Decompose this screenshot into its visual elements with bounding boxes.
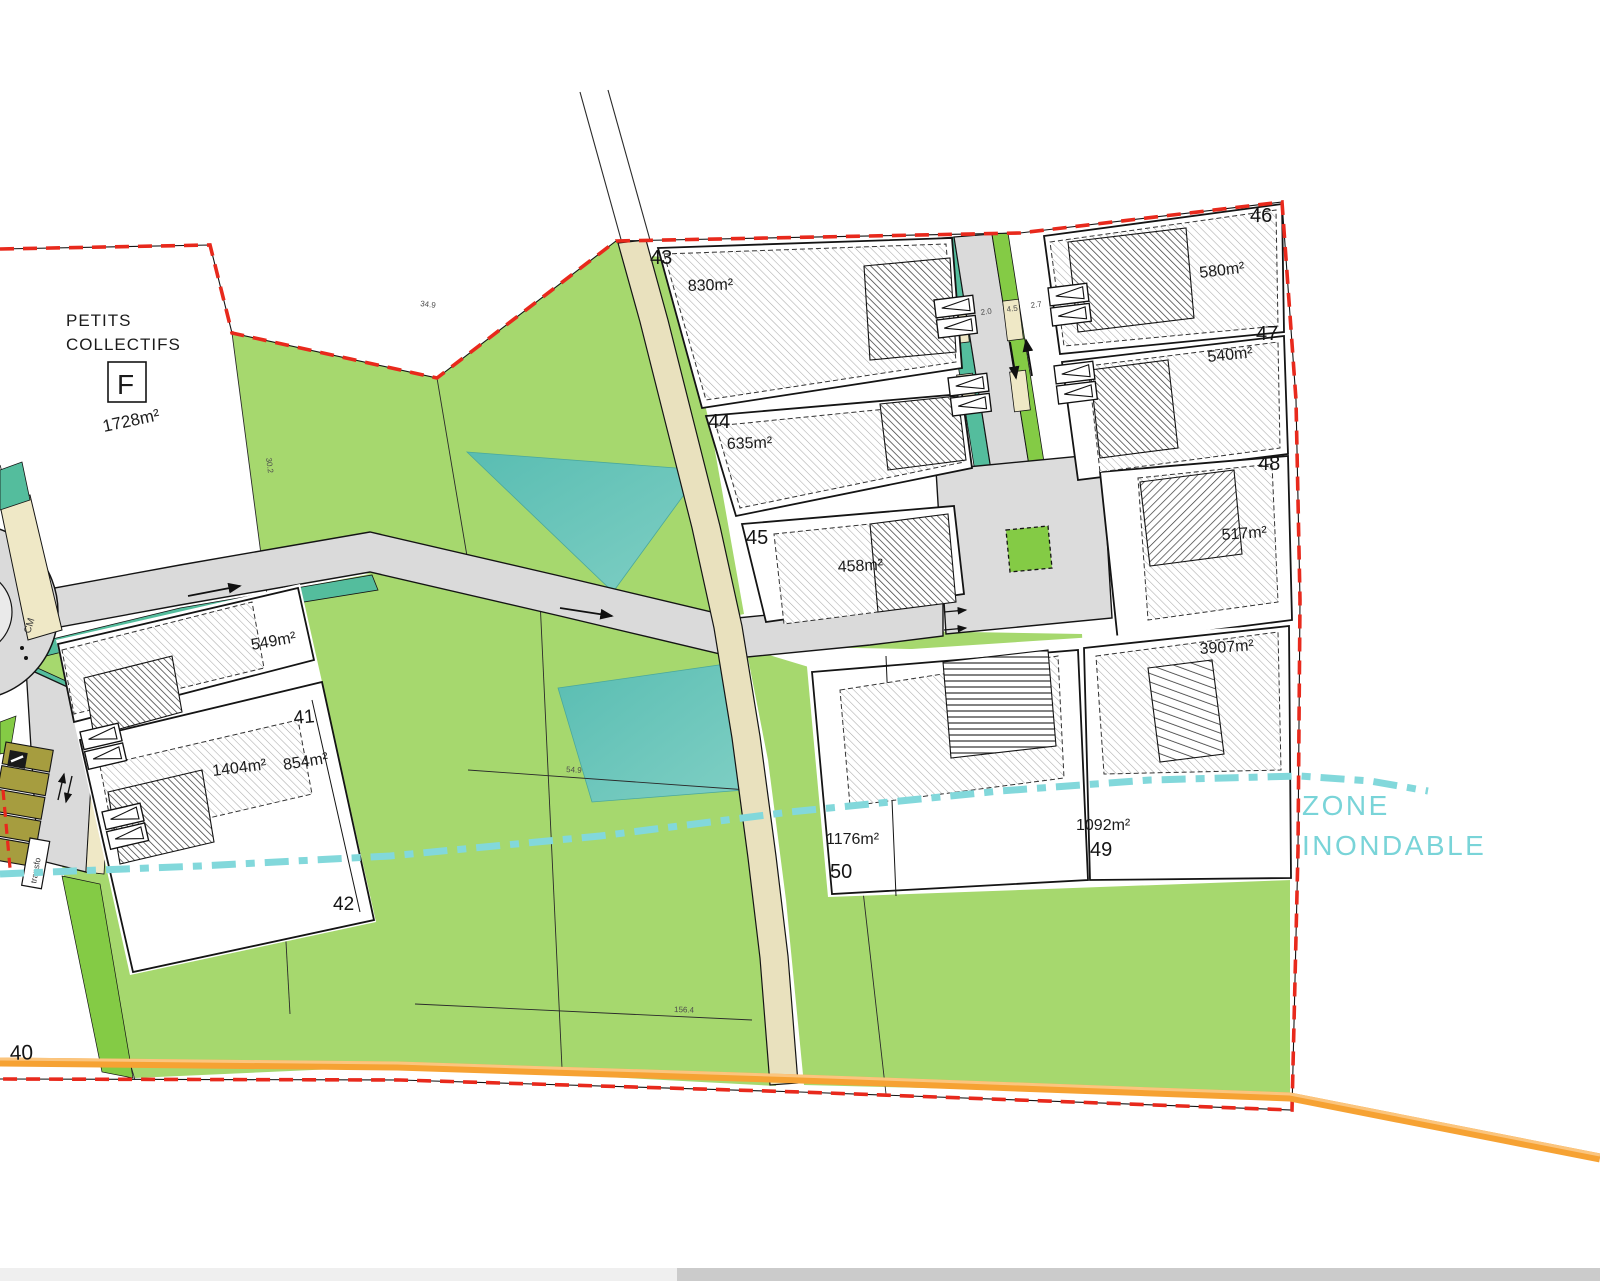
parcel-49-area: 1092m²: [1076, 817, 1131, 834]
parcel-41-number: 41: [293, 706, 316, 729]
building-47: [1090, 360, 1178, 458]
dim-lane-right: 2.7: [1030, 299, 1043, 310]
orange-limit-line: [0, 1059, 1600, 1158]
parcel-45-number: 45: [746, 527, 768, 549]
parcel-47-number: 47: [1256, 323, 1278, 345]
plaza-green-square: [1006, 526, 1052, 572]
dim-lane-center: 4.5: [1006, 303, 1019, 314]
building-50: [943, 650, 1056, 758]
parcel-50-number: 50: [830, 861, 852, 883]
building-f-label: F: [117, 369, 134, 400]
flood-zone-label-2: INONDABLE: [1302, 830, 1486, 861]
collectifs-line2: COLLECTIFS: [66, 335, 181, 354]
parcel-45-area: 458m²: [837, 557, 884, 576]
container-icon: [7, 750, 28, 769]
building-48: [1140, 470, 1242, 566]
parcel-43-area: 830m²: [688, 276, 735, 295]
horizontal-scrollbar-thumb[interactable]: [677, 1268, 1600, 1281]
area-f: 1728m²: [101, 405, 162, 436]
parcel-42-number: 42: [333, 894, 354, 915]
parcel-40-number: 40: [9, 1041, 33, 1065]
parcel-50-area: 1176m²: [826, 831, 880, 848]
dim-lane-left: 2.0: [980, 306, 993, 317]
parcel-49-number: 49: [1090, 839, 1112, 861]
collectifs-line1: PETITS: [66, 311, 132, 330]
site-plan-svg: transfo: [0, 0, 1600, 1281]
dim-field-length: 156.4: [674, 1005, 695, 1015]
dim-boundary-top: 34.9: [420, 299, 437, 310]
parcel-48-area: 517m²: [1221, 524, 1268, 544]
plan-canvas[interactable]: transfo: [0, 0, 1600, 1281]
parcel-46-number: 46: [1250, 205, 1272, 227]
dim-field-width: 54.9: [566, 765, 583, 775]
parcel-48-number: 48: [1258, 453, 1280, 475]
parcel-44-area: 635m²: [727, 434, 774, 453]
flood-zone-label-1: ZONE: [1302, 790, 1390, 821]
parcel-43-number: 43: [650, 247, 672, 269]
parcel-44-number: 44: [708, 411, 730, 433]
building-large: [1148, 660, 1224, 762]
